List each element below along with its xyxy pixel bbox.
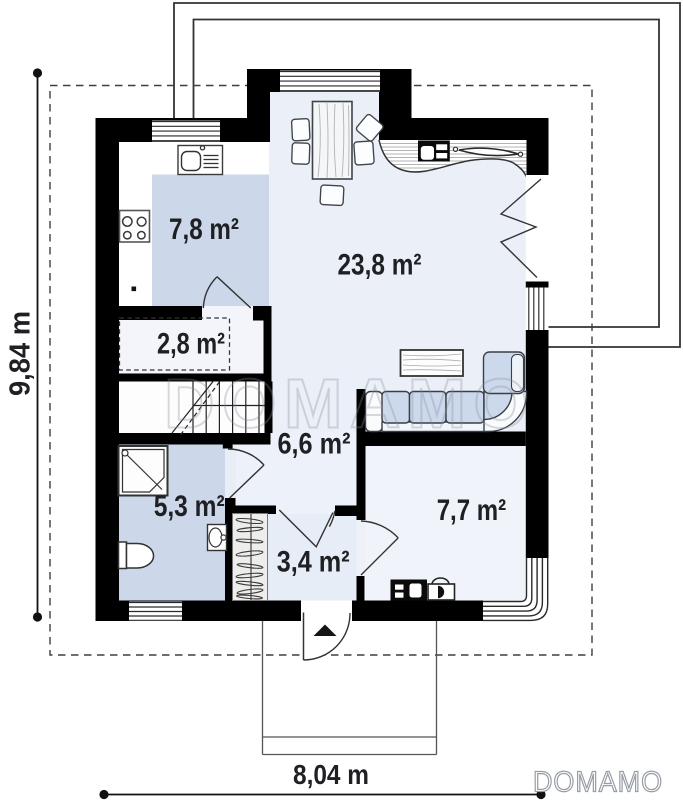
svg-text:7,7 m²: 7,7 m² xyxy=(437,494,507,527)
svg-text:DOMAMO: DOMAMO xyxy=(533,767,663,799)
svg-text:2,8 m²: 2,8 m² xyxy=(157,328,225,361)
svg-text:8,04 m: 8,04 m xyxy=(293,759,369,790)
svg-text:5,3 m²: 5,3 m² xyxy=(154,490,225,523)
svg-text:3,4 m²: 3,4 m² xyxy=(277,546,350,579)
svg-text:DOMAMO: DOMAMO xyxy=(164,365,538,443)
svg-text:23,8 m²: 23,8 m² xyxy=(338,249,422,282)
svg-text:9,84 m: 9,84 m xyxy=(5,311,37,396)
svg-text:7,8 m²: 7,8 m² xyxy=(169,213,239,246)
